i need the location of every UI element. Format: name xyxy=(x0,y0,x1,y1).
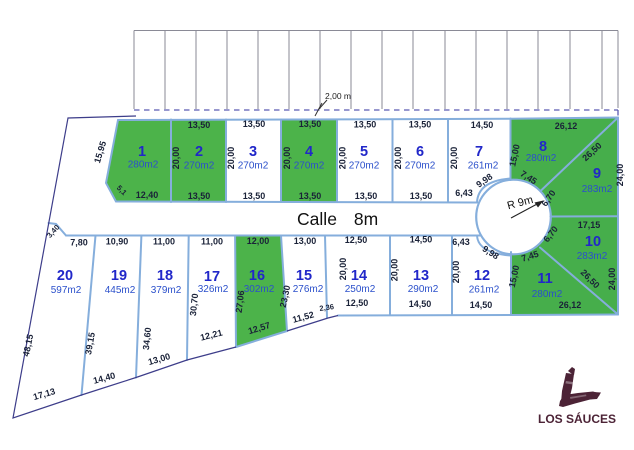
svg-text:250m2: 250m2 xyxy=(345,284,376,295)
svg-text:20,00: 20,00 xyxy=(393,147,403,170)
svg-text:7,80: 7,80 xyxy=(70,238,88,248)
svg-text:5: 5 xyxy=(360,144,368,160)
svg-text:14,40: 14,40 xyxy=(92,370,116,385)
svg-text:1: 1 xyxy=(138,144,146,160)
svg-text:18: 18 xyxy=(157,268,173,284)
svg-text:13,50: 13,50 xyxy=(409,120,432,130)
svg-text:24,00: 24,00 xyxy=(607,268,617,291)
svg-text:302m2: 302m2 xyxy=(244,284,275,295)
svg-text:12,40: 12,40 xyxy=(136,190,159,200)
svg-text:10: 10 xyxy=(585,234,601,250)
svg-text:597m2: 597m2 xyxy=(51,285,82,296)
svg-text:14,50: 14,50 xyxy=(471,120,494,130)
svg-text:326m2: 326m2 xyxy=(198,284,229,295)
svg-text:20,00: 20,00 xyxy=(451,261,461,284)
svg-text:2: 2 xyxy=(195,144,203,160)
svg-text:261m2: 261m2 xyxy=(468,161,499,172)
svg-text:17,13: 17,13 xyxy=(32,386,56,402)
svg-text:26,12: 26,12 xyxy=(559,300,582,310)
svg-text:283m2: 283m2 xyxy=(577,251,608,262)
svg-text:13,50: 13,50 xyxy=(188,120,211,130)
svg-text:39,15: 39,15 xyxy=(83,332,97,356)
svg-text:30,70: 30,70 xyxy=(188,293,200,316)
svg-text:13,50: 13,50 xyxy=(243,191,266,201)
svg-text:6,43: 6,43 xyxy=(455,188,473,198)
svg-text:12,50: 12,50 xyxy=(345,235,368,245)
svg-text:17: 17 xyxy=(204,269,220,285)
svg-text:26,12: 26,12 xyxy=(555,121,578,131)
svg-text:13,00: 13,00 xyxy=(147,351,171,367)
svg-text:13,50: 13,50 xyxy=(354,120,377,130)
svg-text:14,50: 14,50 xyxy=(409,299,432,309)
svg-text:20: 20 xyxy=(57,268,73,284)
svg-text:13,50: 13,50 xyxy=(299,191,322,201)
svg-text:290m2: 290m2 xyxy=(408,284,439,295)
svg-text:13,50: 13,50 xyxy=(299,119,322,129)
svg-text:270m2: 270m2 xyxy=(294,161,325,172)
svg-text:4: 4 xyxy=(305,144,313,160)
svg-text:445m2: 445m2 xyxy=(105,285,136,296)
svg-text:3: 3 xyxy=(249,144,257,160)
svg-text:280m2: 280m2 xyxy=(128,160,159,171)
svg-text:12,21: 12,21 xyxy=(199,328,223,343)
svg-text:11,52: 11,52 xyxy=(291,309,315,324)
svg-text:13,50: 13,50 xyxy=(355,191,378,201)
svg-text:Calle: Calle xyxy=(297,209,337,229)
svg-text:20,00: 20,00 xyxy=(226,147,236,170)
svg-text:12,00: 12,00 xyxy=(247,236,270,246)
svg-text:7: 7 xyxy=(475,144,483,160)
svg-text:280m2: 280m2 xyxy=(526,153,557,164)
svg-text:20,00: 20,00 xyxy=(171,147,181,170)
svg-text:11,00: 11,00 xyxy=(201,237,223,247)
svg-text:13,50: 13,50 xyxy=(243,119,266,129)
svg-text:280m2: 280m2 xyxy=(532,289,563,300)
svg-text:379m2: 379m2 xyxy=(151,285,182,296)
svg-text:20,00: 20,00 xyxy=(282,147,292,170)
svg-text:14,50: 14,50 xyxy=(470,300,493,310)
svg-text:270m2: 270m2 xyxy=(349,161,380,172)
svg-text:15,95: 15,95 xyxy=(92,140,108,164)
svg-text:LOS SÁUCES: LOS SÁUCES xyxy=(538,411,616,426)
svg-text:15: 15 xyxy=(296,268,312,284)
svg-text:13: 13 xyxy=(413,268,429,284)
svg-text:13,00: 13,00 xyxy=(294,236,317,246)
svg-text:11,00: 11,00 xyxy=(153,237,175,247)
svg-text:6: 6 xyxy=(416,144,424,160)
svg-text:2,36: 2,36 xyxy=(319,302,335,313)
svg-text:34,60: 34,60 xyxy=(141,327,153,350)
svg-text:8m: 8m xyxy=(354,209,378,229)
svg-text:283m2: 283m2 xyxy=(582,184,613,195)
svg-text:9: 9 xyxy=(593,166,601,182)
svg-text:276m2: 276m2 xyxy=(293,284,324,295)
svg-text:261m2: 261m2 xyxy=(469,285,500,296)
svg-text:13,50: 13,50 xyxy=(410,191,433,201)
svg-text:6,43: 6,43 xyxy=(452,237,470,247)
svg-text:270m2: 270m2 xyxy=(238,161,269,172)
svg-text:10,90: 10,90 xyxy=(106,237,129,247)
svg-text:16: 16 xyxy=(249,268,265,284)
svg-text:20,00: 20,00 xyxy=(338,147,348,170)
svg-text:270m2: 270m2 xyxy=(405,161,436,172)
svg-text:12: 12 xyxy=(474,268,490,284)
svg-text:14,50: 14,50 xyxy=(410,235,433,245)
svg-text:20,00: 20,00 xyxy=(390,259,400,282)
svg-text:14: 14 xyxy=(351,268,367,284)
svg-text:19: 19 xyxy=(111,268,127,284)
svg-text:3,40: 3,40 xyxy=(45,223,61,240)
svg-text:20,00: 20,00 xyxy=(449,147,459,170)
svg-text:2,00 m: 2,00 m xyxy=(325,91,351,101)
svg-text:270m2: 270m2 xyxy=(184,161,215,172)
svg-text:12,50: 12,50 xyxy=(346,298,369,308)
svg-text:24,00: 24,00 xyxy=(615,164,625,187)
svg-text:20,00: 20,00 xyxy=(338,258,348,281)
svg-text:48,15: 48,15 xyxy=(21,333,35,357)
svg-text:17,15: 17,15 xyxy=(578,220,601,230)
svg-text:13,50: 13,50 xyxy=(188,191,211,201)
svg-text:11: 11 xyxy=(537,271,552,287)
